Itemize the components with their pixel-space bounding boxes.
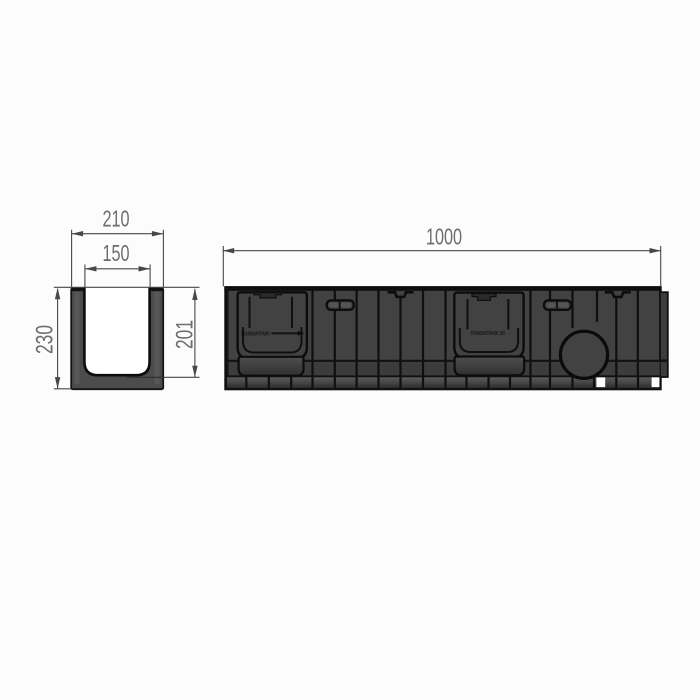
svg-text:150: 150 <box>103 240 130 266</box>
svg-text:1000: 1000 <box>426 223 462 249</box>
svg-text:STANDARTPARK: STANDARTPARK <box>241 331 270 337</box>
svg-text:230: 230 <box>31 325 58 354</box>
svg-text:210: 210 <box>103 205 130 231</box>
svg-text:STANDARTPARK 100: STANDARTPARK 100 <box>471 331 506 337</box>
svg-text:201: 201 <box>172 320 199 349</box>
